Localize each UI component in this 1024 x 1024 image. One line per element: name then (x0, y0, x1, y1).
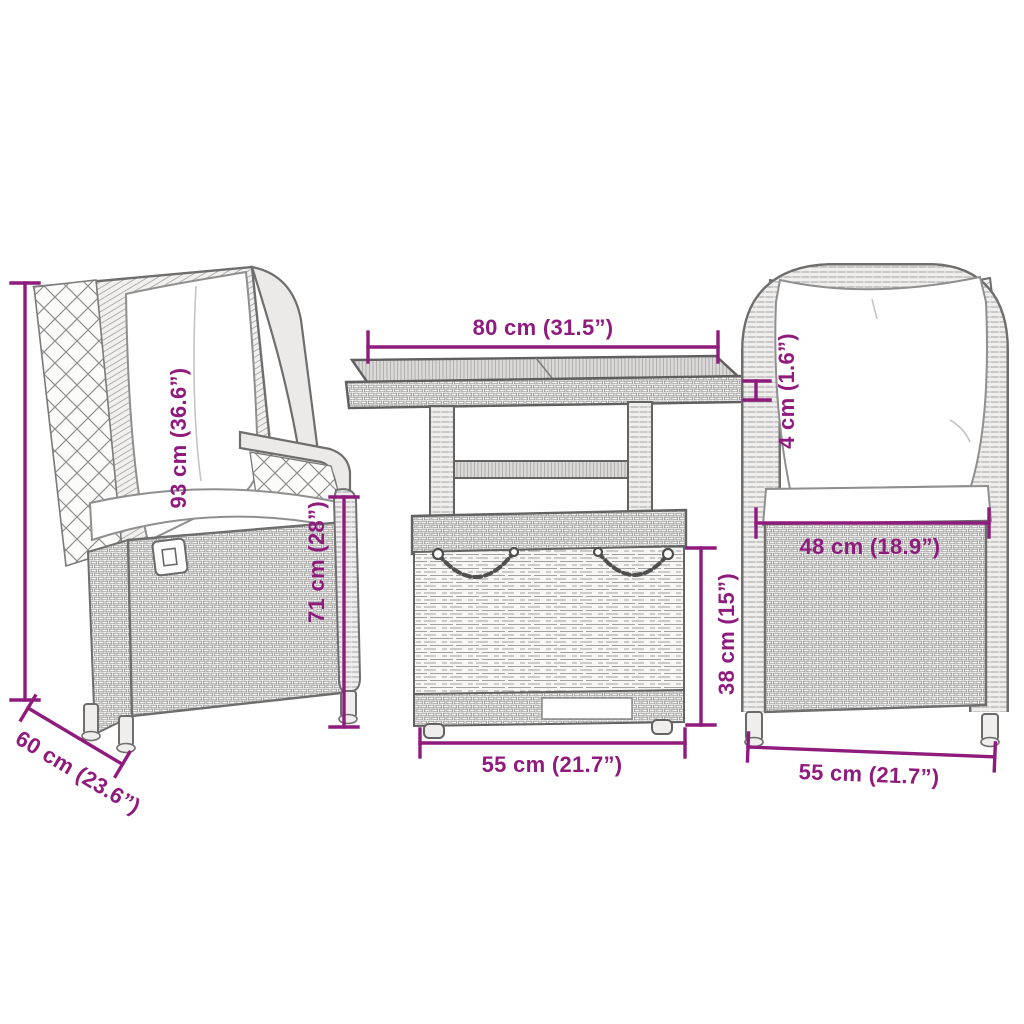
dim-label-chair-width: 55 cm (21.7”) (798, 759, 940, 790)
left-chair-back-foot (82, 732, 100, 741)
right-chair-back-cushion (775, 277, 987, 489)
dim-tick (115, 752, 129, 776)
chain-left-hook (510, 548, 518, 556)
chain-right-hook (594, 548, 602, 556)
dim-table-base-height: 38 cm (15”) (687, 548, 739, 725)
table-crossbar (454, 461, 628, 478)
chain-left-ring (433, 549, 443, 559)
dim-tick (747, 733, 748, 761)
dim-label-table-top-width: 80 cm (31.5”) (473, 315, 614, 340)
table-top-edge-band (346, 376, 747, 408)
dim-label-table-base-width: 55 cm (21.7”) (482, 752, 623, 777)
dim-table-top-width: 80 cm (31.5”) (368, 315, 718, 362)
furniture-dimension-diagram: 80 cm (31.5”) 93 cm (36.6”) 71 cm (28”) … (0, 0, 1024, 1024)
table-label-plate (542, 698, 632, 719)
left-chair-front-left-leg (119, 716, 133, 746)
dim-label-table-top-thickness: 4 cm (1.6”) (774, 333, 799, 449)
table-post-left (430, 406, 454, 522)
table-post-right (628, 402, 652, 520)
dim-label-chair-total-height: 93 cm (36.6”) (166, 368, 191, 509)
dim-table-base-width: 55 cm (21.7”) (420, 729, 685, 777)
table-foot-right (652, 720, 672, 734)
left-chair-front-band (334, 489, 360, 692)
left-chair-front-left-foot (117, 744, 135, 753)
diagram-canvas: 80 cm (31.5”) 93 cm (36.6”) 71 cm (28”) … (0, 0, 1024, 1024)
dim-line (748, 747, 995, 757)
dim-chair-width: 55 cm (21.7”) (747, 733, 996, 792)
dim-tick (994, 743, 995, 771)
dim-label-table-base-height: 38 cm (15”) (714, 573, 739, 695)
chain-right-ring (663, 549, 673, 559)
left-chair-recline-handle (152, 538, 188, 576)
left-chair-back-leg (84, 704, 98, 734)
dim-label-chair-armrest-height: 71 cm (28”) (304, 501, 329, 623)
left-chair-front-right-foot (339, 715, 357, 724)
dim-label-chair-seat-width: 48 cm (18.9”) (800, 534, 941, 559)
right-chair-legs (745, 712, 999, 747)
table-foot-left (424, 724, 444, 738)
right-chair-right-leg (982, 714, 998, 740)
right-chair-seat-cushion (763, 486, 991, 525)
